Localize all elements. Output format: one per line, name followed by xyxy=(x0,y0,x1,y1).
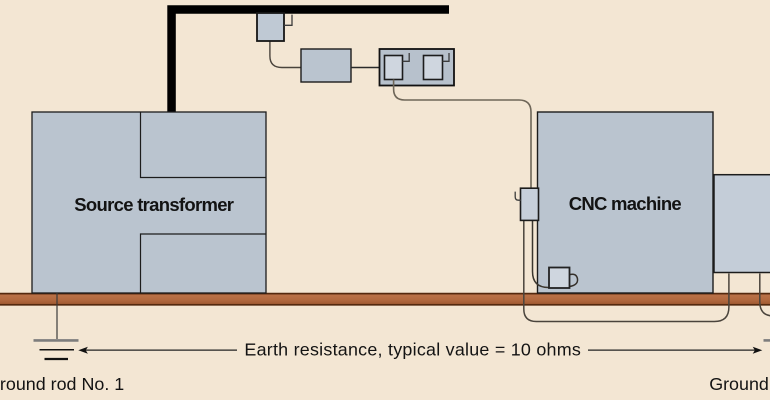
svg-text:Source transformer: Source transformer xyxy=(74,194,234,215)
svg-text:Earth resistance, typical valu: Earth resistance, typical value = 10 ohm… xyxy=(244,339,580,359)
svg-text:CNC machine: CNC machine xyxy=(569,193,682,214)
svg-text:Ground rod No. 1: Ground rod No. 1 xyxy=(0,374,124,394)
svg-text:Ground rod No. 2: Ground rod No. 2 xyxy=(709,374,770,394)
